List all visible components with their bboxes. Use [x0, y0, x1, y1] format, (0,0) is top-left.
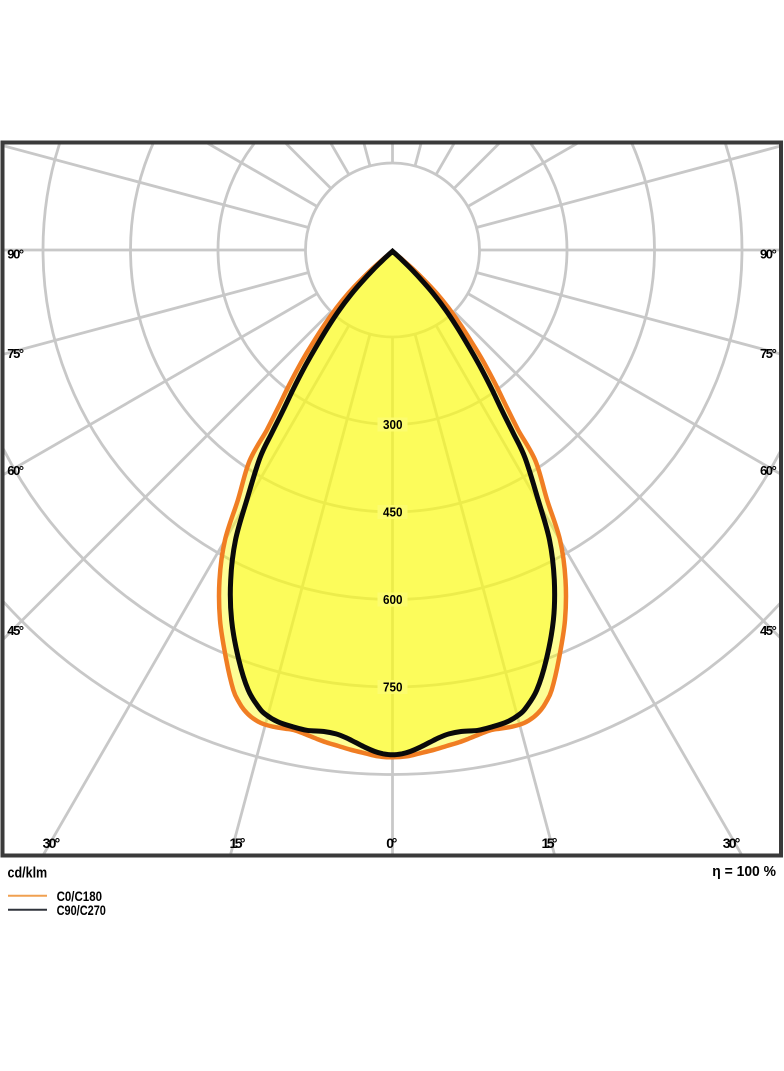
svg-text:30°: 30° [43, 835, 61, 851]
svg-text:15°: 15° [230, 835, 246, 851]
svg-text:C0/C180: C0/C180 [57, 889, 102, 904]
svg-text:cd/klm: cd/klm [8, 865, 48, 882]
svg-text:75°: 75° [7, 346, 24, 361]
svg-text:600: 600 [383, 592, 403, 607]
svg-text:45°: 45° [760, 623, 777, 638]
svg-text:45°: 45° [7, 623, 24, 638]
svg-text:300: 300 [383, 417, 403, 432]
svg-text:75°: 75° [760, 346, 777, 361]
svg-text:60°: 60° [7, 463, 24, 478]
svg-text:0°: 0° [386, 835, 397, 851]
svg-text:750: 750 [383, 680, 403, 695]
svg-text:C90/C270: C90/C270 [57, 903, 106, 918]
svg-text:η = 100 %: η = 100 % [712, 863, 776, 880]
svg-text:15°: 15° [542, 835, 558, 851]
svg-text:60°: 60° [760, 463, 777, 478]
svg-text:450: 450 [383, 505, 403, 520]
svg-text:90°: 90° [7, 247, 24, 262]
svg-text:90°: 90° [760, 247, 777, 262]
svg-text:30°: 30° [723, 835, 741, 851]
